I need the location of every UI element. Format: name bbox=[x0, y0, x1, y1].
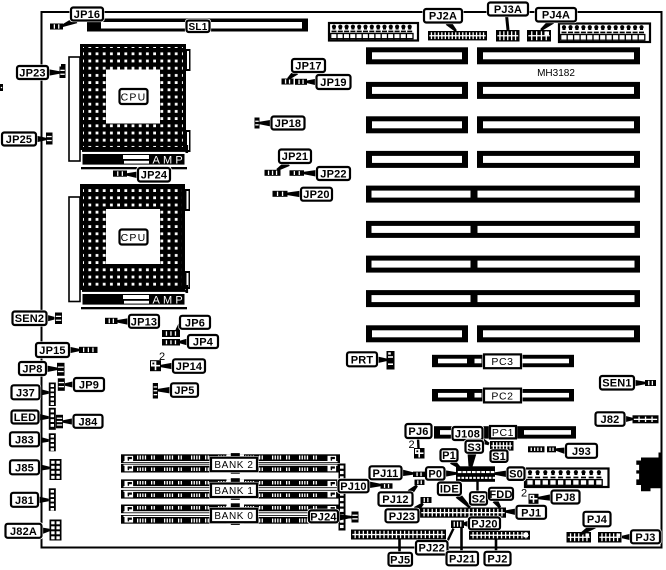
svg-text:JP22: JP22 bbox=[320, 168, 347, 180]
svg-text:J81: J81 bbox=[15, 495, 34, 507]
svg-text:PJ22: PJ22 bbox=[419, 543, 446, 555]
svg-text:JP25: JP25 bbox=[6, 134, 33, 146]
svg-text:JP4: JP4 bbox=[193, 336, 214, 348]
svg-text:PJ12: PJ12 bbox=[382, 494, 409, 506]
svg-text:J84: J84 bbox=[79, 416, 99, 428]
svg-text:PJ20: PJ20 bbox=[471, 518, 498, 530]
svg-text:PRT: PRT bbox=[351, 354, 374, 366]
svg-text:PJ23: PJ23 bbox=[389, 511, 416, 523]
svg-text:JP6: JP6 bbox=[185, 317, 205, 329]
svg-text:PJ24: PJ24 bbox=[310, 511, 337, 523]
svg-text:SEN1: SEN1 bbox=[602, 378, 632, 390]
svg-text:JP9: JP9 bbox=[79, 379, 99, 391]
svg-text:J37: J37 bbox=[16, 387, 35, 399]
svg-text:SEN2: SEN2 bbox=[15, 313, 45, 325]
svg-text:S1: S1 bbox=[492, 451, 506, 463]
svg-text:PJ3: PJ3 bbox=[635, 532, 655, 544]
svg-text:J82A: J82A bbox=[10, 526, 37, 538]
svg-text:PJ2: PJ2 bbox=[487, 554, 507, 566]
svg-text:JP14: JP14 bbox=[176, 361, 203, 373]
svg-text:J85: J85 bbox=[15, 462, 34, 474]
svg-text:JP17: JP17 bbox=[295, 60, 322, 72]
svg-text:JP24: JP24 bbox=[141, 170, 168, 182]
svg-text:JP5: JP5 bbox=[174, 385, 194, 397]
svg-text:JP19: JP19 bbox=[320, 77, 347, 89]
svg-text:PJ8: PJ8 bbox=[555, 492, 575, 504]
svg-text:P1: P1 bbox=[442, 450, 456, 462]
svg-text:S0: S0 bbox=[509, 469, 523, 481]
svg-text:2: 2 bbox=[521, 488, 527, 500]
svg-text:CPU: CPU bbox=[121, 91, 147, 103]
svg-text:PC1: PC1 bbox=[492, 427, 514, 439]
svg-text:PC3: PC3 bbox=[491, 356, 513, 368]
svg-text:S3: S3 bbox=[467, 442, 481, 454]
svg-text:CPU: CPU bbox=[121, 232, 147, 244]
svg-text:JP20: JP20 bbox=[303, 189, 330, 201]
svg-text:BANK 2: BANK 2 bbox=[214, 460, 253, 471]
svg-text:PJ4: PJ4 bbox=[587, 514, 608, 526]
svg-text:JP15: JP15 bbox=[39, 345, 66, 357]
svg-text:S2: S2 bbox=[472, 493, 486, 505]
svg-text:2: 2 bbox=[409, 439, 415, 451]
svg-text:PJ1: PJ1 bbox=[521, 507, 541, 519]
svg-text:JP18: JP18 bbox=[275, 118, 302, 130]
svg-text:MH3182: MH3182 bbox=[537, 68, 575, 79]
svg-text:PC2: PC2 bbox=[491, 390, 513, 402]
svg-text:AMP: AMP bbox=[153, 155, 186, 167]
svg-text:PJ6: PJ6 bbox=[408, 426, 428, 438]
svg-text:PJ3A: PJ3A bbox=[494, 4, 522, 16]
svg-text:BANK 1: BANK 1 bbox=[214, 486, 253, 497]
svg-text:J108: J108 bbox=[455, 428, 480, 440]
svg-text:J93: J93 bbox=[572, 446, 591, 458]
svg-text:AMP: AMP bbox=[153, 295, 186, 307]
svg-text:IDE: IDE bbox=[440, 484, 459, 496]
svg-text:JP16: JP16 bbox=[74, 9, 101, 21]
svg-text:LED: LED bbox=[14, 412, 37, 424]
svg-text:PJ10: PJ10 bbox=[340, 481, 367, 493]
svg-text:PJ4A: PJ4A bbox=[542, 10, 570, 22]
svg-text:JP23: JP23 bbox=[19, 67, 46, 79]
svg-text:PJ2A: PJ2A bbox=[429, 11, 457, 23]
svg-text:JP21: JP21 bbox=[282, 151, 309, 163]
svg-text:J82: J82 bbox=[601, 414, 620, 426]
svg-text:SL1: SL1 bbox=[189, 22, 208, 33]
svg-text:J83: J83 bbox=[15, 434, 34, 446]
svg-text:BANK 0: BANK 0 bbox=[214, 511, 253, 522]
svg-text:JP13: JP13 bbox=[131, 316, 158, 328]
svg-text:PJ11: PJ11 bbox=[373, 468, 399, 480]
svg-text:FDD: FDD bbox=[489, 489, 512, 501]
svg-text:PJ21: PJ21 bbox=[449, 554, 476, 566]
svg-text:P0: P0 bbox=[428, 468, 442, 480]
svg-text:JP8: JP8 bbox=[22, 363, 42, 375]
svg-text:PJ5: PJ5 bbox=[390, 554, 410, 566]
